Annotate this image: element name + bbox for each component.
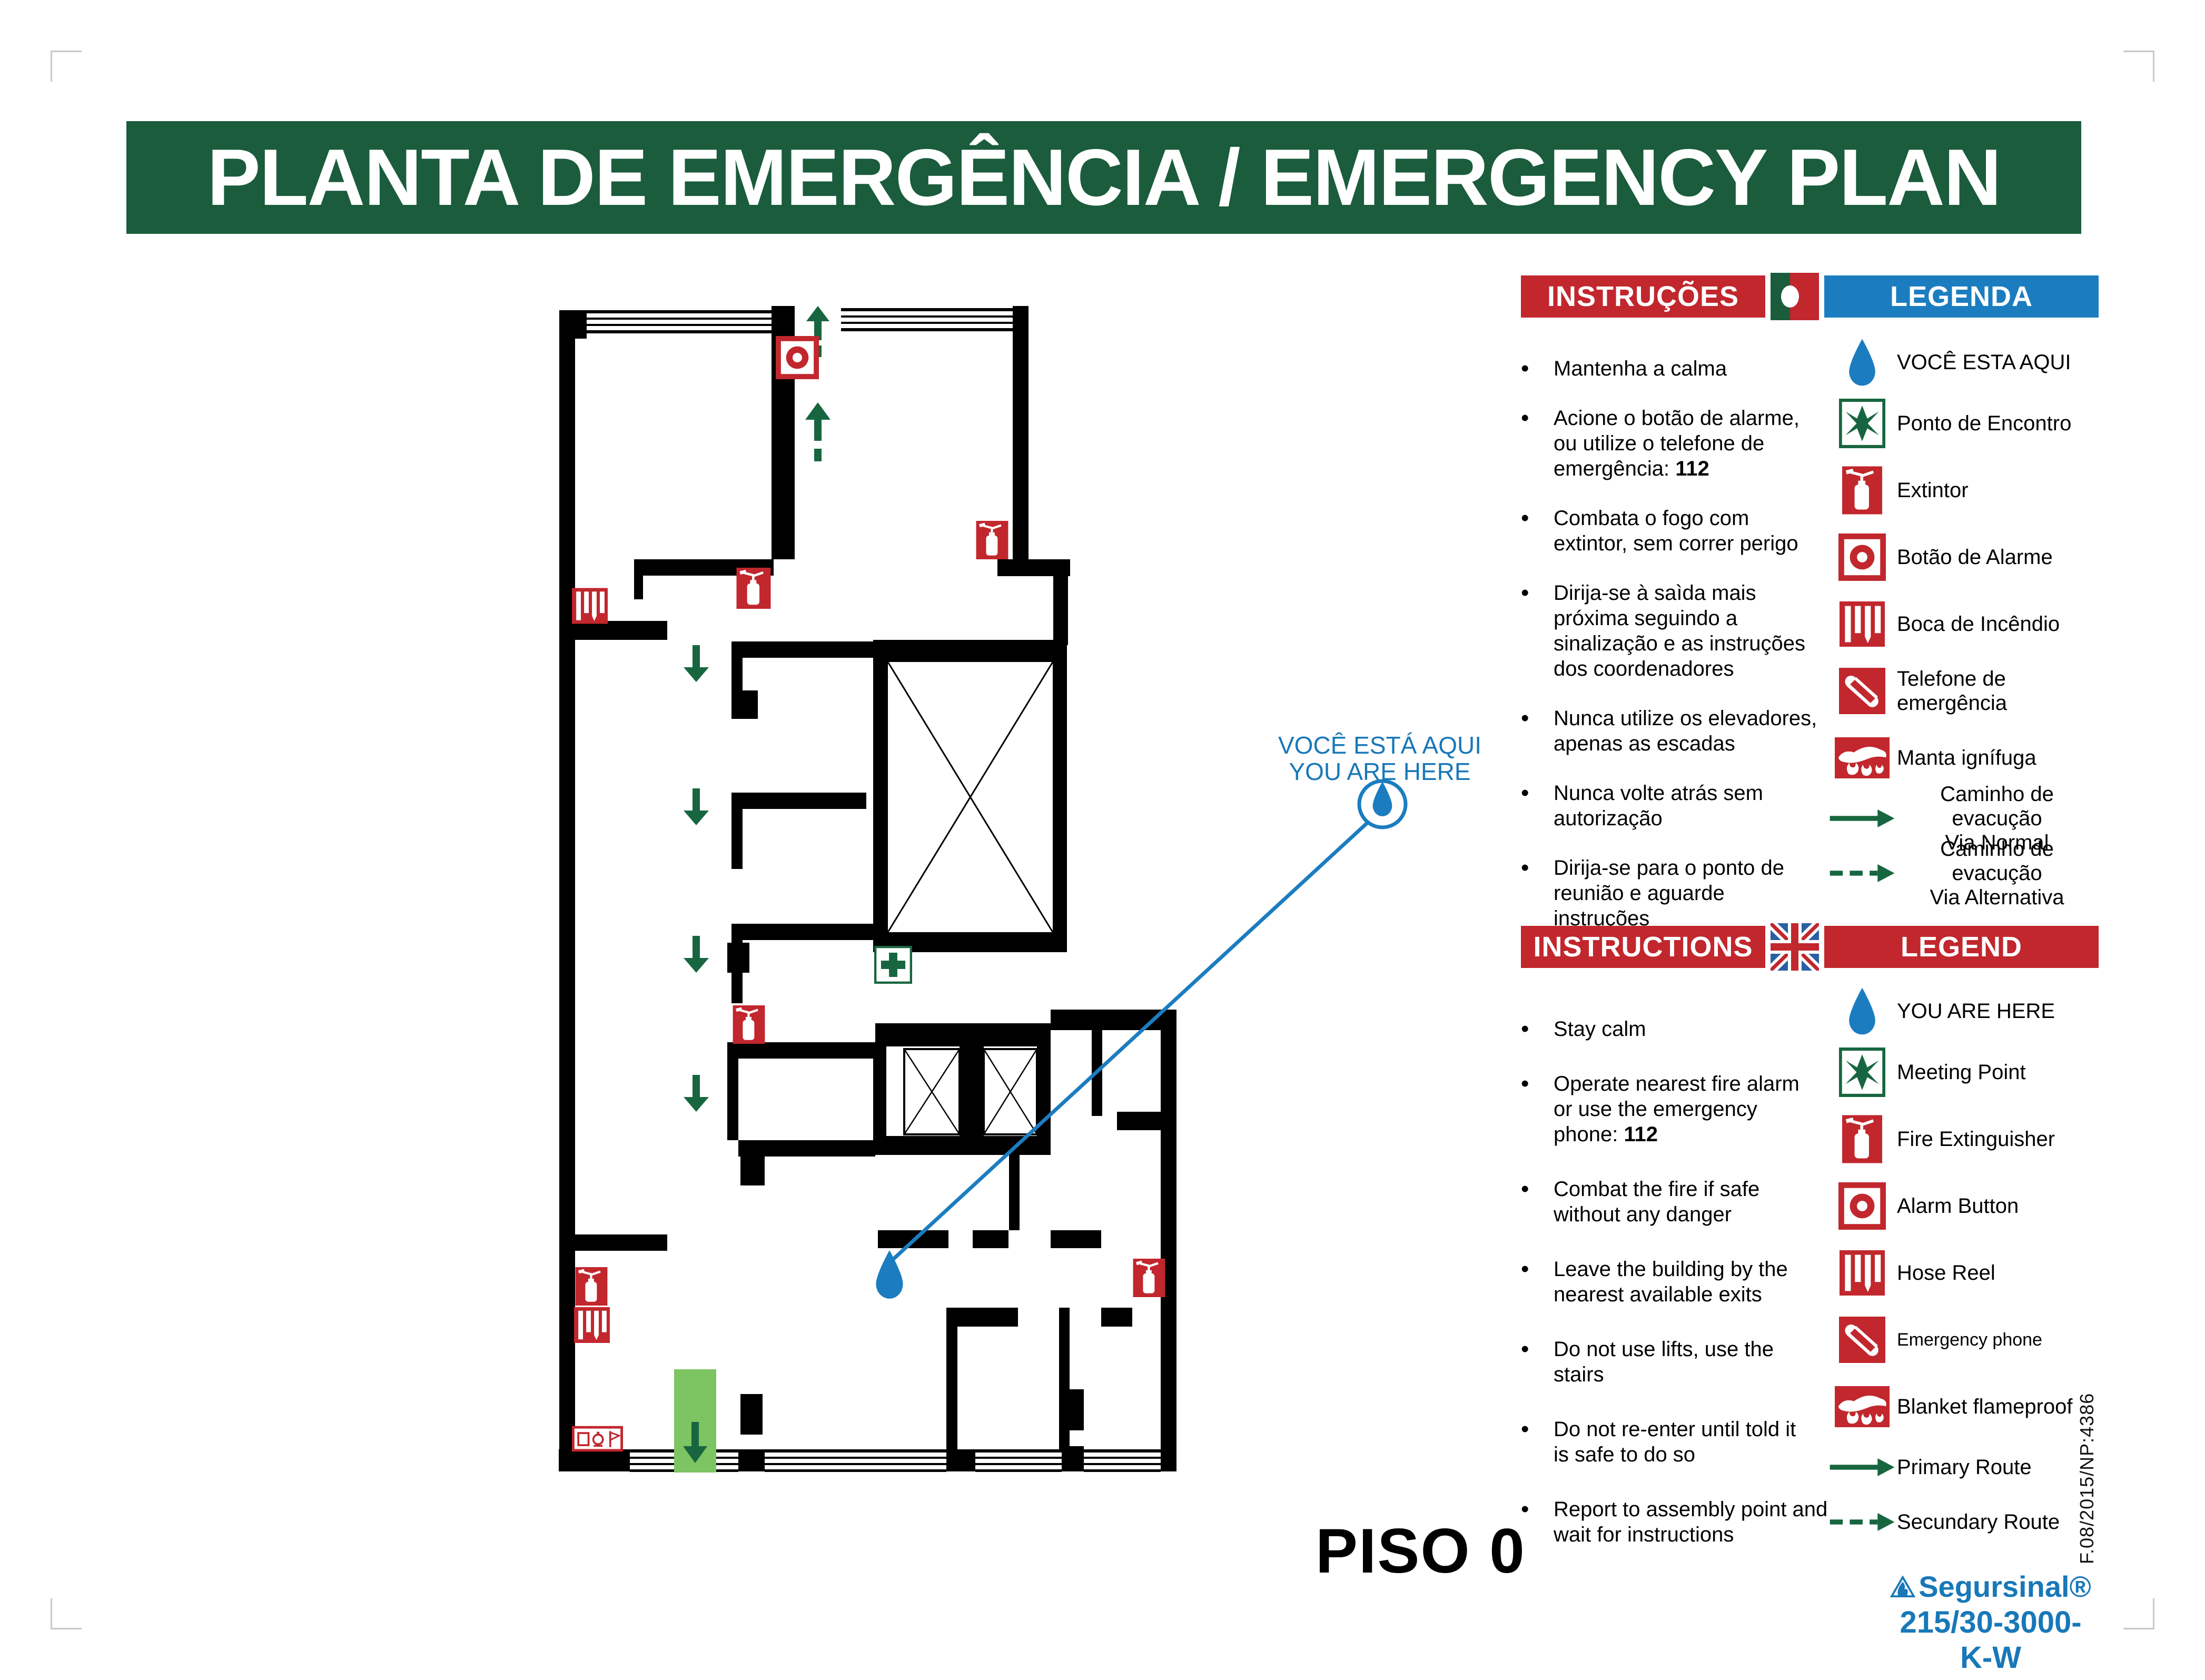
- legend-item: Alarm Button: [1827, 1172, 2101, 1239]
- window-band-top-left: [587, 310, 772, 333]
- list-item: •Stay calm: [1521, 1016, 1832, 1042]
- segursinal-logo-icon: [1890, 1576, 1915, 1598]
- fire-extinguisher-icon: [737, 568, 771, 609]
- legend-item: Caminho de evacução Via Alternativa: [1827, 846, 2101, 901]
- fire-extinguisher-icon: [1827, 1115, 1897, 1163]
- bullet: •: [1521, 1177, 1554, 1227]
- legend-item: Secundary Route: [1827, 1495, 2101, 1549]
- legend-item: Telefone de emergência: [1827, 657, 2101, 724]
- legend-item: VOCÊ ESTA AQUI: [1827, 335, 2101, 390]
- emergency-phone-icon: [1827, 1317, 1897, 1363]
- uk-flag-icon: [1771, 923, 1819, 971]
- portugal-flag-icon: [1771, 273, 1819, 320]
- hose-reel-icon: [574, 1307, 610, 1343]
- fire-extinguisher-icon: [576, 1267, 608, 1306]
- legend-item: Botão de Alarme: [1827, 523, 2101, 590]
- pt-legend-title: LEGENDA: [1890, 280, 2033, 313]
- bullet: •: [1521, 1417, 1554, 1467]
- fire-extinguisher-icon: [733, 1005, 765, 1044]
- list-item: •Nunca volte atrás sem autorização: [1521, 780, 1821, 831]
- list-item: •Combat the fire if safe without any dan…: [1521, 1177, 1832, 1227]
- floor-label: PISO 0: [1316, 1515, 1526, 1587]
- alarm-button-icon: [1827, 533, 1897, 581]
- legend-item: Boca de Incêndio: [1827, 590, 2101, 657]
- evacuation-route-arrows: [683, 306, 830, 1463]
- legend-item: Meeting Point: [1827, 1039, 2101, 1105]
- crop-mark: [2123, 51, 2154, 82]
- brand-name: Segursinal®: [1919, 1569, 2091, 1604]
- primary-route-icon: [1827, 1458, 1897, 1476]
- bullet: •: [1521, 406, 1554, 481]
- list-item: •Report to assembly point and wait for i…: [1521, 1497, 1832, 1547]
- secondary-route-icon: [1827, 864, 1897, 882]
- list-item: •Nunca utilize os elevadores, apenas as …: [1521, 706, 1821, 756]
- window-band-top-right: [841, 308, 1013, 331]
- brand-footer: Segursinal® 215/30-3000-K-W: [1885, 1569, 2096, 1675]
- pt-instructions-title: INSTRUÇÕES: [1547, 280, 1739, 313]
- en-instructions-list: •Stay calm •Operate nearest fire alarm o…: [1521, 1016, 1832, 1577]
- legend-item: Hose Reel: [1827, 1239, 2101, 1306]
- en-legend-title: LEGEND: [1901, 931, 2022, 963]
- fire-extinguisher-icon: [1827, 466, 1897, 515]
- crop-mark: [51, 51, 82, 82]
- legend-item: Blanket flameproof: [1827, 1373, 2101, 1440]
- bullet: •: [1521, 1257, 1554, 1307]
- meeting-point-icon: [1827, 399, 1897, 448]
- bullet: •: [1521, 855, 1554, 931]
- pt-legend-header: LEGENDA: [1824, 275, 2099, 318]
- bullet: •: [1521, 356, 1554, 381]
- list-item: •Do not use lifts, use the stairs: [1521, 1337, 1832, 1387]
- pt-instructions-list: •Mantenha a calma •Acione o botão de ala…: [1521, 356, 1821, 955]
- alarm-button-icon: [776, 336, 819, 379]
- bullet: •: [1521, 506, 1554, 556]
- list-item: •Operate nearest fire alarm or use the e…: [1521, 1071, 1832, 1147]
- en-legend-list: YOU ARE HERE Meeting Point Fire Extingui…: [1827, 984, 2101, 1549]
- list-item: •Leave the building by the nearest avail…: [1521, 1257, 1832, 1307]
- document-ref: F.08/2015/NP:4386: [2076, 1280, 2098, 1564]
- legend-item: Primary Route: [1827, 1440, 2101, 1495]
- crop-mark: [51, 1598, 82, 1629]
- pt-instructions-header: INSTRUÇÕES: [1521, 275, 1765, 318]
- legend-item: Ponto de Encontro: [1827, 390, 2101, 457]
- alarm-panel-icon: [573, 1427, 621, 1450]
- you-are-here-label: VOCÊ ESTÁ AQUI YOU ARE HERE: [1227, 732, 1532, 785]
- bullet: •: [1521, 1071, 1554, 1147]
- bullet: •: [1521, 1016, 1554, 1042]
- fire-extinguisher-icon: [976, 521, 1008, 559]
- pt-legend-list: VOCÊ ESTA AQUI Ponto de Encontro Extinto…: [1827, 335, 2101, 901]
- hose-reel-icon: [1827, 600, 1897, 648]
- list-item: •Mantenha a calma: [1521, 356, 1821, 381]
- list-item: •Dirija-se à saìda mais próxima seguindo…: [1521, 580, 1821, 681]
- primary-route-icon: [1827, 809, 1897, 827]
- crop-mark: [2123, 1598, 2154, 1629]
- legend-item: Emergency phone: [1827, 1306, 2101, 1373]
- list-item: •Acione o botão de alarme, ou utilize o …: [1521, 406, 1821, 481]
- fire-blanket-icon: [1827, 736, 1897, 779]
- bullet: •: [1521, 780, 1554, 831]
- fire-blanket-icon: [1827, 1385, 1897, 1428]
- bullet: •: [1521, 580, 1554, 681]
- list-item: •Dirija-se para o ponto de reunião e agu…: [1521, 855, 1821, 931]
- bullet: •: [1521, 706, 1554, 756]
- legend-item: YOU ARE HERE: [1827, 984, 2101, 1039]
- brand-code: 215/30-3000-K-W: [1885, 1605, 2096, 1675]
- you-are-here-callout: [843, 711, 1475, 1317]
- list-item: •Do not re-enter until told it is safe t…: [1521, 1417, 1832, 1467]
- you-are-here-icon: [1827, 986, 1897, 1036]
- legend-item: Fire Extinguisher: [1827, 1105, 2101, 1172]
- legend-item: Extintor: [1827, 457, 2101, 523]
- en-legend-header: LEGEND: [1824, 926, 2099, 968]
- alarm-button-icon: [1827, 1182, 1897, 1230]
- page-title: PLANTA DE EMERGÊNCIA / EMERGENCY PLAN: [207, 132, 2000, 224]
- hose-reel-icon: [1827, 1249, 1897, 1297]
- legend-item: Manta ignífuga: [1827, 724, 2101, 791]
- secondary-route-icon: [1827, 1513, 1897, 1531]
- meeting-point-icon: [1827, 1047, 1897, 1097]
- hose-reel-icon: [572, 588, 608, 624]
- bullet: •: [1521, 1497, 1554, 1547]
- title-banner: PLANTA DE EMERGÊNCIA / EMERGENCY PLAN: [126, 121, 2081, 234]
- you-are-here-icon: [1827, 338, 1897, 387]
- emergency-phone-icon: [1827, 668, 1897, 714]
- en-instructions-header: INSTRUCTIONS: [1521, 926, 1765, 968]
- list-item: •Combata o fogo com extintor, sem correr…: [1521, 506, 1821, 556]
- bullet: •: [1521, 1337, 1554, 1387]
- en-instructions-title: INSTRUCTIONS: [1534, 931, 1753, 963]
